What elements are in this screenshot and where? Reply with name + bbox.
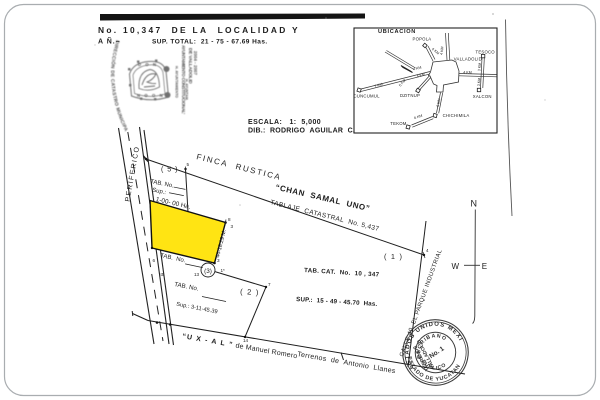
svg-text:VALLADOLID: VALLADOLID [454,57,482,62]
svg-text:DE VALLADOLID: DE VALLADOLID [188,48,193,84]
svg-text:TESOCO: TESOCO [476,49,496,54]
svg-text:(3): (3) [204,268,212,275]
svg-text:4: 4 [426,248,429,253]
svg-text:( 5 ): ( 5 ) [161,167,178,174]
svg-text:3 KM: 3 KM [477,78,482,87]
svg-text:7: 7 [268,282,271,287]
svg-text:POPOLA: POPOLA [413,37,432,42]
svg-text:3: 3 [231,224,234,229]
svg-text:1*: 1* [221,268,226,273]
svg-text:( 1 ): ( 1 ) [384,252,403,261]
svg-text:SUP. TOTAL: 21 - 75 - 67.69 H: SUP. TOTAL: 21 - 75 - 67.69 Has. [152,39,268,46]
svg-text:TEKOM: TEKOM [390,121,406,126]
svg-text:2004 - 2007: 2004 - 2007 [193,51,198,76]
svg-text:H. AYUNTAM.: H. AYUNTAM. [185,79,189,101]
svg-text:N O O N: N O O N [137,93,164,98]
svg-text:4 KM: 4 KM [463,70,471,74]
svg-text:No. 10,347 DE LA LOCALIDAD Y: No. 10,347 DE LA LOCALIDAD Y [98,25,300,35]
svg-text:E: E [482,262,487,271]
svg-text:5: 5 [187,162,190,167]
svg-text:6: 6 [153,258,156,263]
svg-text:UBICACION: UBICACION [378,29,416,35]
svg-text:CUNCUMUL: CUNCUMUL [354,93,381,98]
svg-text:8: 8 [228,217,231,222]
svg-text:D O N: D O N [138,62,158,67]
svg-text:CHICHIMILA: CHICHIMILA [443,113,470,118]
svg-text:DIB.: RODRIGO AGUILAR C.: DIB.: RODRIGO AGUILAR C. [248,128,355,135]
svg-text:( 2 ): ( 2 ) [240,287,260,297]
svg-text:13: 13 [194,272,200,277]
svg-text:3 KM: 3 KM [477,63,482,72]
svg-text:H. AYUNTAMIENTO: H. AYUNTAMIENTO [175,66,179,98]
svg-text:t5: t5 [161,272,165,277]
svg-text:W: W [452,262,460,271]
svg-text:14: 14 [243,338,249,343]
svg-text:DZITNUP: DZITNUP [400,93,420,98]
svg-text:XALCON: XALCON [473,94,492,99]
svg-text:N: N [471,199,478,209]
svg-text:ESCALA: 1: 5,000: ESCALA: 1: 5,000 [248,119,321,126]
